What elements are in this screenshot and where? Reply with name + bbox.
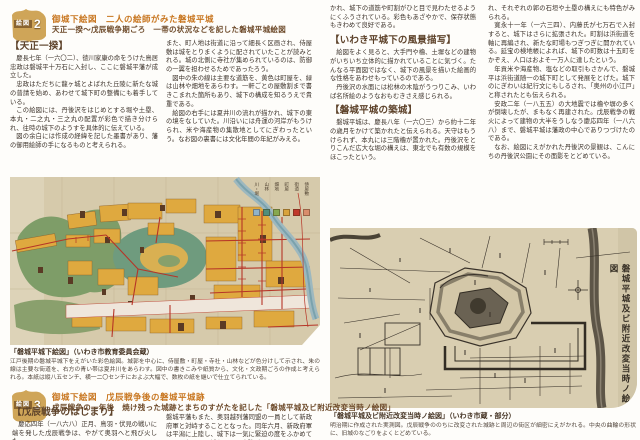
legend-item: 侍屋敷	[303, 182, 310, 216]
paragraph: 慶長七年（一六〇二）、徳川家康の命をうけた鳥居忠政は磐城平十万石に入封し、ここに…	[10, 55, 158, 81]
heading-castle-construction: 【磐城平城の築城】	[330, 104, 476, 117]
left-map-caption: 「磐城平城下絵図」（いわき市教育委員会蔵） 江戸後期の磐城平城下をえがいた彩色絵…	[10, 347, 320, 382]
legend-item: 町屋	[283, 182, 290, 216]
legend-color-chip	[253, 209, 260, 216]
paragraph: 磐城平藩もまた、奥羽越列藩同盟の一員として新政府軍と対峙することとなった。同年六…	[166, 414, 312, 440]
right-map-caption: 「磐城平城及ビ附近改変当時ノ絵図」（いわき市蔵・部分） 明治期に作成された実測図…	[330, 411, 636, 438]
heading-boshin-war: 【戊辰戦争のはじまり】	[12, 406, 157, 419]
paragraph: 絵図の右手には夏井川の流れが描かれ、城下の東の境をなしていた。川沿いには舟運の河…	[166, 110, 312, 145]
paragraph: 図の余白には作成の経緯を記した墨書があり、藩の御用絵師の手になるものと考えられる…	[10, 133, 158, 150]
badge-number: 2	[34, 18, 41, 30]
text-column-1: 【天正一揆】 慶長七年（一六〇二）、徳川家康の命をうけた鳥居忠政は磐城平十万石に…	[10, 40, 158, 174]
survey-map-image	[330, 228, 637, 408]
text-column-bottom-right: 磐城平藩もまた、奥羽越列藩同盟の一員として新政府軍と対峙することとなった。同年六…	[166, 414, 312, 440]
right-map-caption-body: 明治期に作成された実測図。戊辰戦争ののちに改変された城跡と周辺の街区が細密にえが…	[330, 422, 636, 438]
legend-color-chip	[263, 209, 270, 216]
legend-label: 街道	[294, 182, 299, 208]
paragraph: 磐城平城は、慶長八年（一六〇三）から約十二年の歳月をかけて築かれたと伝えられる。…	[330, 119, 476, 162]
text-column-2: また、町人地は街道に沿って細長く区画され、侍屋敷は城をとりまくように配されていた…	[166, 40, 312, 174]
legend-color-chip	[293, 209, 300, 216]
paragraph: 丹後沢の水面には松林の木陰がうつりこみ、いわば名所絵のようなおもむきさえ感じられ…	[330, 84, 476, 101]
paragraph: 寛永十一年（一六三四）、内藤氏が七万石で入封すると、城下はさらに拡張された。町割…	[488, 22, 635, 65]
legend-label: 町屋	[284, 182, 289, 208]
left-map-caption-body: 江戸後期の磐城平城下をえがいた彩色絵図。城郭を中心に、侍屋敷・町屋・寺社・山林な…	[10, 358, 320, 382]
document-page: 絵図 2 御城下絵図 二人の絵師がみた磐城平城 天正一揆〜戊辰戦争期ごろ 一帯の…	[0, 0, 640, 440]
legend-item: 畑地	[273, 182, 280, 216]
heading-tensho-ikki: 【天正一揆】	[10, 40, 158, 53]
paragraph: 安政二年（一八五五）の大地震では櫓や塀の多くが倒壊したが、まもなく再建された。戊…	[488, 101, 635, 144]
paragraph: 慶応四年（一八六八）正月、鳥羽・伏見の戦いに端を発した戊辰戦争は、やがて奥羽へと…	[12, 421, 157, 440]
legend-color-chip	[303, 209, 310, 216]
left-map-legend: 川・堀山林畑地町屋街道侍屋敷	[253, 182, 310, 216]
legend-color-chip	[273, 209, 280, 216]
paragraph: 図中の朱の線は主要な道筋を、黄色は町屋を、緑は山林や畑地をあらわす。一軒ごとの屋…	[166, 75, 312, 110]
paragraph: この絵図には、丹後沢をはじめとする堀や土塁、本丸・二之丸・三之丸の配置が彩色で描…	[10, 107, 158, 133]
legend-label: 畑地	[274, 182, 279, 208]
text-column-bottom-left: 【戊辰戦争のはじまり】 慶応四年（一八六八）正月、鳥羽・伏見の戦いに端を発した戊…	[12, 406, 157, 440]
paragraph: 忠政はただちに龍ヶ城とよばれた丘陵に新たな城の普請を始め、あわせて城下町の整備に…	[10, 81, 158, 107]
legend-item: 街道	[293, 182, 300, 216]
left-map-caption-title: 「磐城平城下絵図」（いわき市教育委員会蔵）	[10, 347, 320, 357]
legend-label: 川・堀	[254, 182, 259, 208]
text-column-4: れ、それぞれの郭の石垣や土塁の構えにも特色がみられる。 寛永十一年（一六三四）、…	[488, 5, 635, 227]
paragraph: 絵図をよく見ると、大手門や櫓、土塀などの建物がいちいち立体的に描かれていることに…	[330, 49, 476, 84]
paragraph: また、町人地は街道に沿って細長く区画され、侍屋敷は城をとりまくように配されていた…	[166, 40, 312, 75]
text-column-3: かれ、城下の道筋や町割がひと目で見わたせるようにくふうされている。彩色もあざやか…	[330, 5, 476, 225]
paragraph: なお、絵図にえがかれた丹後沢の景観は、こんにちの丹後沢公園にその面影をとどめてい…	[488, 144, 635, 161]
heading-landscape: 【いわき平城下の風景描写】	[330, 34, 476, 47]
legend-item: 山林	[263, 182, 270, 216]
paragraph: 年貢米や海産物、塩などの取引もさかんで、磐城平は浜街道随一の城下町として発展をと…	[488, 66, 635, 101]
paragraph: かれ、城下の道筋や町割がひと目で見わたせるようにくふうされている。彩色もあざやか…	[330, 5, 476, 31]
right-map-figure: 磐城平城及ビ附近改変当時ノ絵図	[330, 228, 637, 408]
left-map-figure: 川・堀山林畑地町屋街道侍屋敷	[10, 177, 320, 345]
right-map-vertical-title: 磐城平城及ビ附近改変当時ノ絵図	[608, 264, 632, 408]
legend-label: 山林	[264, 182, 269, 208]
legend-item: 川・堀	[253, 182, 260, 216]
legend-color-chip	[283, 209, 290, 216]
paragraph: れ、それぞれの郭の石垣や土塁の構えにも特色がみられる。	[488, 5, 635, 22]
legend-label: 侍屋敷	[304, 182, 309, 208]
section2-title-line2: 天正一揆〜戊辰戦争期ごろ 一帯の状況などを記した磐城平城絵図	[52, 24, 286, 35]
badge-label: 絵図	[14, 20, 32, 28]
